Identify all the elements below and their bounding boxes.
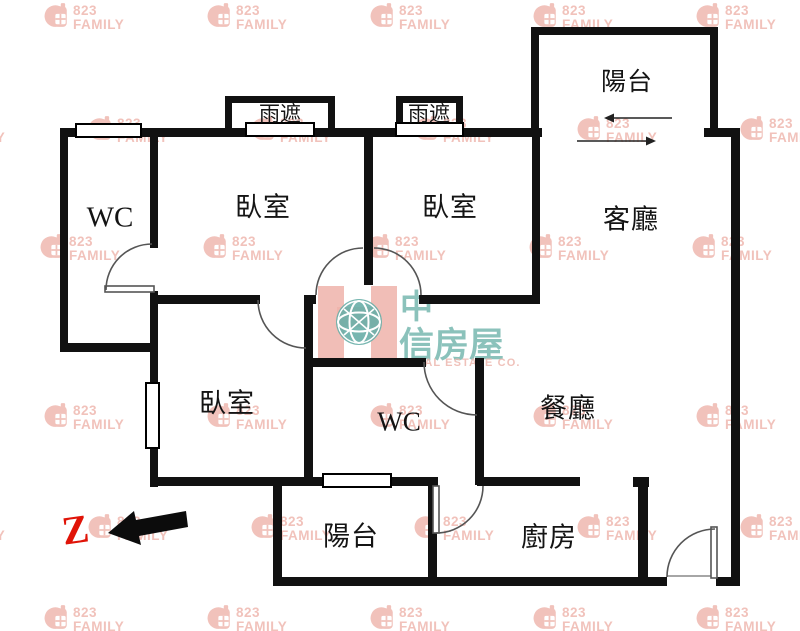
room-label-bathroom: WC (377, 407, 421, 438)
room-label-balcony-bottom: 陽台 (323, 515, 379, 554)
room-label-living-room: 客廳 (603, 198, 659, 237)
room-label-balcony-top: 陽台 (601, 62, 653, 98)
room-label-bedroom-3: 臥室 (199, 382, 255, 421)
rain-shelter-label-1: 雨遮 (259, 98, 301, 128)
north-marker-letter: Z (59, 504, 92, 554)
floor-plan-canvas: 823FAMILY823FAMILY823FAMILY823FAMILY823F… (0, 0, 800, 631)
room-label-bedroom-2: 臥室 (422, 186, 478, 225)
label-layer: WC 臥室 臥室 客廳 陽台 臥室 WC 餐廳 陽台 廚房 雨遮 雨遮 Z (0, 0, 800, 631)
room-label-wc-top: WC (87, 202, 134, 235)
room-label-bedroom-1: 臥室 (235, 186, 291, 225)
room-label-dining-room: 餐廳 (540, 387, 596, 426)
rain-shelter-label-2: 雨遮 (408, 98, 450, 128)
room-label-kitchen: 廚房 (521, 516, 577, 555)
